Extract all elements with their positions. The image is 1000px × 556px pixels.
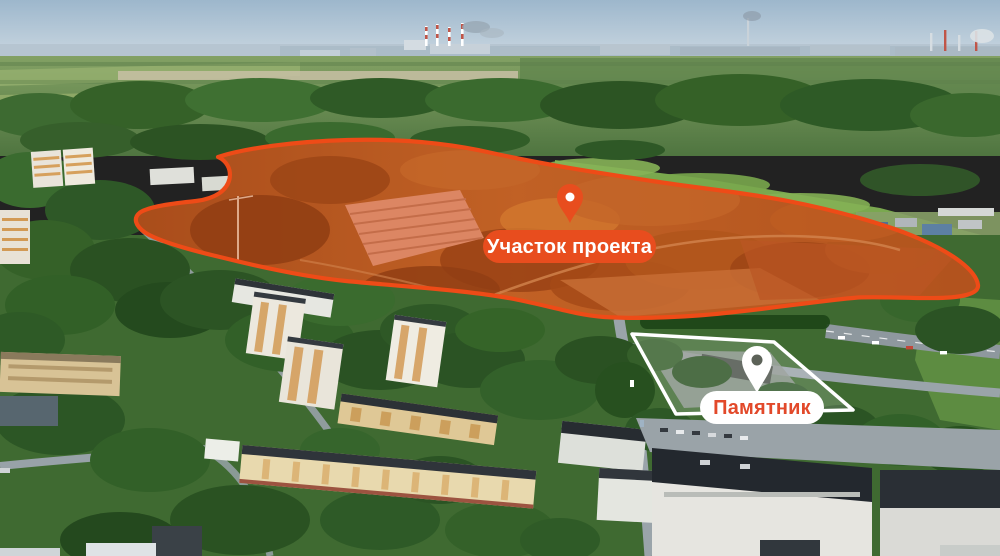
monument-label[interactable]: Памятник [700, 391, 824, 424]
distant-village [118, 71, 518, 80]
apartment-tower [0, 210, 30, 264]
apartment-tower [279, 336, 344, 409]
apartment-tower [386, 315, 447, 388]
school-building [0, 352, 121, 396]
aerial-photo: Участок проекта Памятник [0, 0, 1000, 556]
monument-label-text: Памятник [713, 397, 812, 419]
project-site-label-text: Участок проекта [487, 236, 653, 258]
aerial-map: Участок проекта Памятник [0, 0, 1000, 556]
project-site-label[interactable]: Участок проекта [483, 230, 656, 263]
